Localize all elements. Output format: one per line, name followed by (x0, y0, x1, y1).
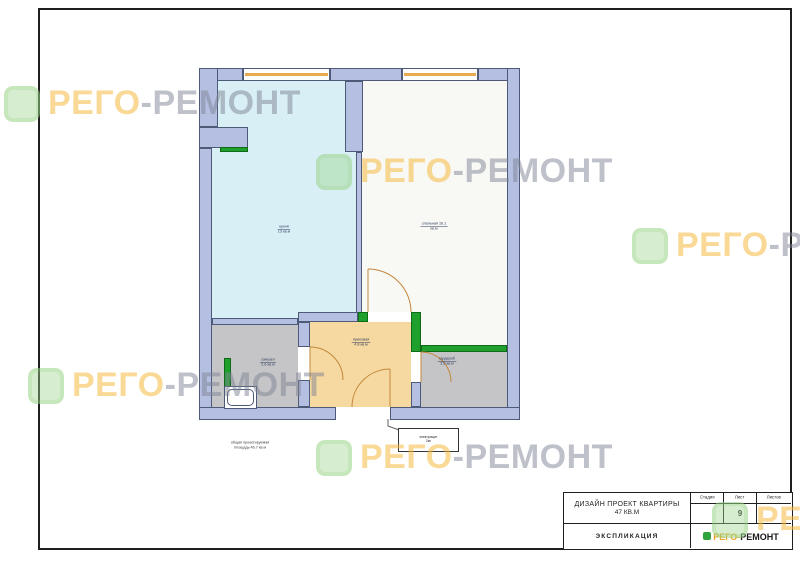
kitchen-floor (211, 80, 357, 318)
logo-text-dark: РЕМОНТ (740, 532, 779, 542)
sheet-header-cell: Лист (724, 493, 757, 504)
bathroom-label: санузел 2.6 кв.м (243, 358, 293, 368)
sheet-header-label: Лист (735, 496, 744, 500)
wall-segment-top-middle (330, 68, 402, 81)
window-sill (245, 73, 328, 76)
wall-bottom-right (390, 407, 520, 420)
logo-text-orange: РЕГО- (713, 532, 740, 542)
window-sill (404, 73, 476, 76)
wall-wardrobe-left-lower (411, 382, 421, 407)
sheets-header-label: Листов (767, 496, 781, 500)
brand-house-icon (703, 532, 711, 540)
hallway-area: 4.8 кв.м (354, 343, 367, 347)
project-title-line2: 47 КВ.М (615, 509, 639, 516)
doc-type-cell: ЭКСПЛИКАЦИЯ (564, 524, 691, 548)
stage-header-cell: Стадия (691, 493, 724, 504)
stage-value-cell (691, 504, 724, 524)
wall-left-upper (199, 68, 218, 127)
project-title-cell: ДИЗАЙН ПРОЕКТ КВАРТИРЫ 47 КВ.М (564, 493, 691, 524)
utility-callout-text: электрощит 2м² (419, 436, 437, 443)
doc-type-label: ЭКСПЛИКАЦИЯ (595, 533, 658, 540)
watermark-house-icon (4, 86, 40, 122)
wall-left-lower (199, 148, 212, 420)
wall-bathroom-right-lower (298, 380, 310, 407)
wall-left-pilaster (199, 127, 248, 148)
kitchen-label: кухня 13 кв.м (259, 225, 309, 235)
sheets-value-cell (757, 504, 791, 524)
wall-bottom-left (199, 407, 336, 420)
wall-hallway-top (298, 312, 358, 322)
sheet-number: 9 (738, 509, 742, 518)
total-area-note: общая проектируемая площадь 46.7 кв.м (219, 441, 281, 450)
new-wall-bedroom-wardrobe (421, 345, 507, 352)
wardrobe-label: гардероб 3.5 кв.м (422, 357, 472, 367)
project-title-line1: ДИЗАЙН ПРОЕКТ КВАРТИРЫ (575, 501, 680, 508)
new-wall-pier (358, 312, 368, 322)
bedroom-area: кв.м (430, 227, 437, 231)
hallway-floor (310, 322, 411, 407)
wall-bathroom-top (212, 318, 298, 325)
utility-line2: 2м² (419, 440, 437, 444)
kitchen-window (243, 68, 330, 81)
hallway-label: прихожая 4.8 кв.м (336, 338, 386, 348)
bathtub (224, 386, 257, 409)
bedroom-label: спальная 16.1 кв.м (409, 222, 459, 232)
sheets-header-cell: Листов (757, 493, 791, 504)
drawing-sheet: электрощит 2м² кухня 13 кв.м спальная 16… (0, 0, 800, 562)
partition-kitchen-bedroom (356, 152, 362, 322)
new-wall-hallway-wardrobe (411, 312, 421, 352)
note-line2: площадь 46.7 кв.м (219, 446, 281, 451)
bathtub-inner (227, 389, 254, 406)
kitchen-area: 13 кв.м (278, 230, 290, 234)
utility-callout-box: электрощит 2м² (398, 428, 459, 452)
bedroom-floor (362, 80, 507, 312)
title-block: ДИЗАЙН ПРОЕКТ КВАРТИРЫ 47 КВ.М Стадия Ли… (563, 492, 793, 550)
logo-cell: РЕГО-РЕМОНТ (691, 524, 791, 548)
wall-right (507, 68, 520, 420)
bedroom-window (402, 68, 478, 81)
wall-kitchen-bedroom (345, 81, 363, 152)
new-wall-kitchen (220, 147, 248, 152)
stage-header-label: Стадия (700, 496, 715, 500)
wall-bathroom-right-upper (298, 322, 310, 347)
bedroom-floor-extension (421, 312, 507, 345)
sheet-value-cell: 9 (724, 504, 757, 524)
wardrobe-area: 3.5 кв.м (440, 362, 453, 366)
bathroom-area: 2.6 кв.м (261, 363, 274, 367)
